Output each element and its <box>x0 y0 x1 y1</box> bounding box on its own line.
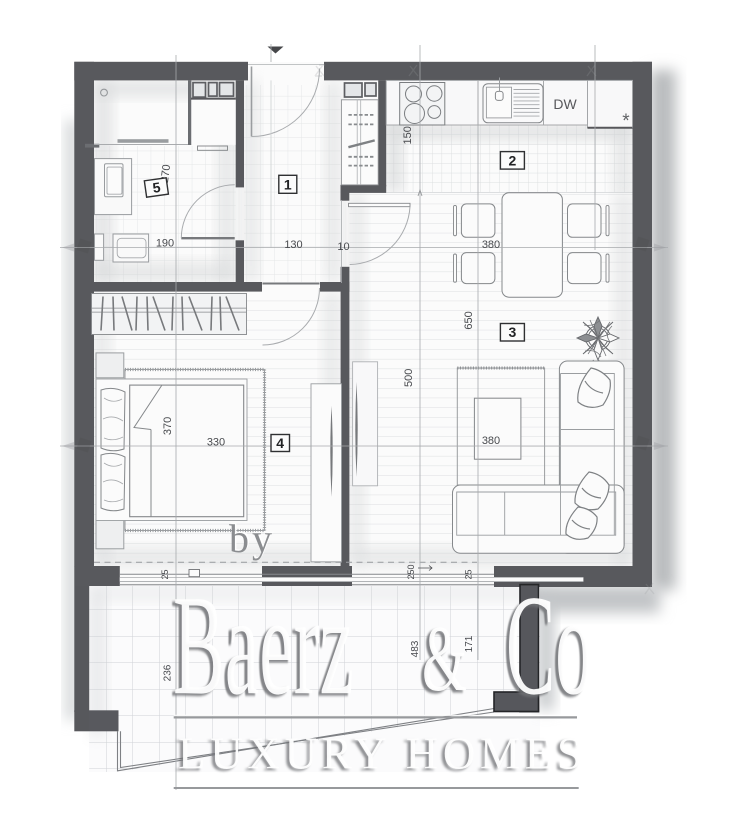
svg-text:&: & <box>422 605 467 710</box>
svg-text:by: by <box>229 516 275 561</box>
svg-text:Co: Co <box>506 565 592 725</box>
svg-text:Baerz: Baerz <box>173 565 354 724</box>
